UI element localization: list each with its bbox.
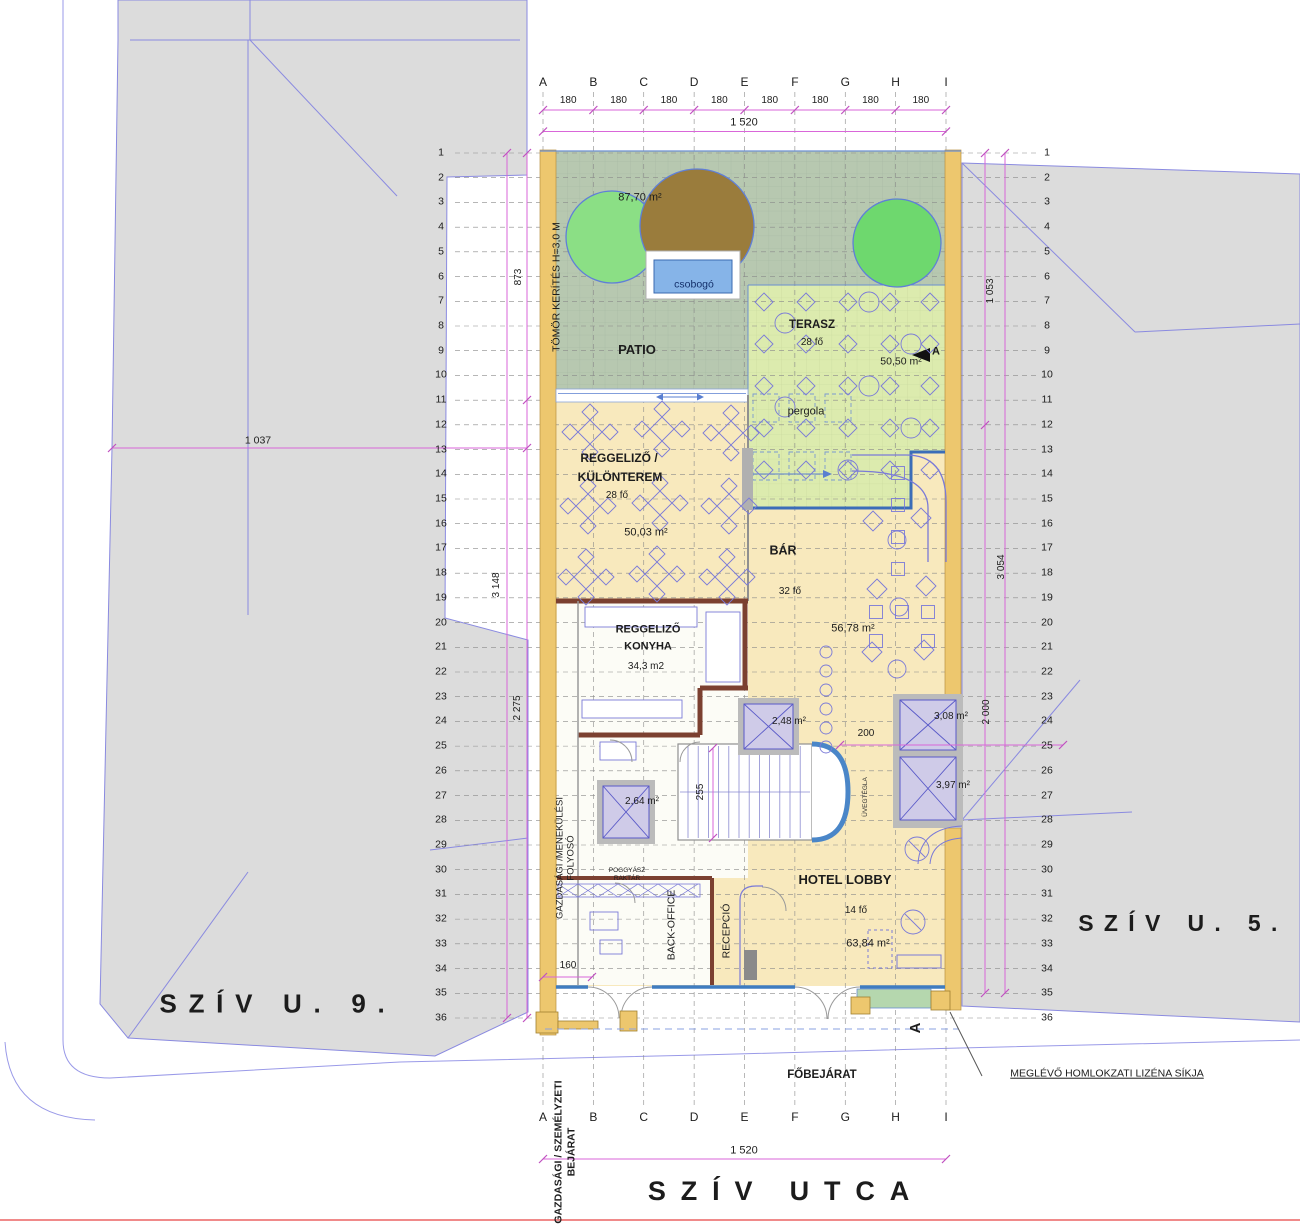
- backoffice-area: [557, 878, 712, 985]
- grid-letter-bottom-G: G: [841, 1110, 850, 1124]
- label-poggyasz-1: POGGYÁSZ: [609, 867, 645, 875]
- grid-row-right-32: 32: [1041, 913, 1053, 926]
- area-terasz: 50,50 m²: [880, 356, 921, 369]
- dim-bar-200: 200: [858, 728, 875, 740]
- grid-row-left-32: 32: [435, 913, 447, 926]
- room-label-bar: BÁR: [769, 544, 796, 559]
- label-folyoso-line1: GAZDASÁGI /MENEKÜLÉSI: [555, 797, 566, 919]
- grid-row-left-11: 11: [436, 394, 447, 407]
- grid-row-right-35: 35: [1041, 987, 1053, 1000]
- capacity-lobby: 14 fő: [845, 905, 867, 917]
- grid-row-right-33: 33: [1041, 938, 1053, 951]
- grid-row-left-14: 14: [435, 468, 447, 481]
- grid-row-right-23: 23: [1041, 690, 1053, 703]
- grid-letter-top-I: I: [944, 75, 947, 89]
- grid-bay-dim: 180: [560, 95, 577, 107]
- grid-row-left-7: 7: [438, 295, 444, 308]
- grid-row-right-34: 34: [1041, 962, 1053, 975]
- grid-row-left-30: 30: [435, 863, 447, 876]
- label-folyoso-line2: FOLYOSÓ: [566, 797, 577, 919]
- grid-row-left-28: 28: [435, 814, 447, 827]
- elevator-2-64: [597, 780, 655, 844]
- grid-row-right-26: 26: [1041, 765, 1053, 778]
- grid-row-right-20: 20: [1041, 616, 1053, 629]
- grid-letter-top-B: B: [589, 75, 597, 89]
- label-uvegtegla: ÜVEGTÉGLA: [862, 777, 870, 817]
- section-letter-top: A: [932, 345, 940, 358]
- grid-row-left-23: 23: [435, 690, 447, 703]
- site-plan-drawing: [0, 0, 1300, 1224]
- grid-bay-dim: 180: [610, 95, 627, 107]
- grid-letter-bottom-F: F: [791, 1110, 798, 1124]
- label-kerites: TÖMÖR KERÍTÉS H=3,0 M: [551, 222, 564, 352]
- grid-row-right-8: 8: [1044, 320, 1050, 333]
- room-label-reggelizo-1: REGGELIZŐ /: [580, 451, 657, 465]
- grid-row-left-9: 9: [438, 344, 444, 357]
- grid-row-left-22: 22: [435, 666, 447, 679]
- grid-row-left-15: 15: [435, 493, 447, 506]
- grid-row-right-11: 11: [1042, 394, 1053, 407]
- street-label-sziv-u9: SZÍV U. 9.: [160, 988, 397, 1019]
- grid-row-left-13: 13: [435, 443, 447, 456]
- grid-letter-bottom-B: B: [589, 1110, 597, 1124]
- label-lizena: MEGLÉVŐ HOMLOKZATI LIZÉNA SÍKJA: [1010, 1068, 1204, 1081]
- grid-row-left-21: 21: [435, 641, 447, 654]
- area-elevator-2: 3,08 m²: [934, 711, 968, 723]
- grid-row-right-5: 5: [1044, 246, 1050, 259]
- grid-letter-bottom-H: H: [891, 1110, 900, 1124]
- grid-letter-top-G: G: [841, 75, 850, 89]
- grid-row-right-18: 18: [1041, 567, 1053, 580]
- grid-row-right-31: 31: [1041, 888, 1053, 901]
- building-left-sziv-u9: [100, 0, 528, 1056]
- dim-left-upper: 873: [513, 269, 525, 286]
- grid-row-right-17: 17: [1041, 542, 1053, 555]
- grid-row-right-1: 1: [1044, 147, 1050, 160]
- label-fobejarat: FŐBEJÁRAT: [787, 1069, 856, 1083]
- room-label-reggelizo-2: KÜLÖNTEREM: [578, 470, 663, 484]
- section-letter-bottom: A: [907, 1023, 925, 1034]
- grid-row-right-30: 30: [1041, 863, 1053, 876]
- grid-letter-top-E: E: [740, 75, 748, 89]
- area-elevator-4: 2,64 m²: [625, 796, 659, 808]
- grid-row-left-5: 5: [438, 246, 444, 259]
- grid-row-left-34: 34: [435, 962, 447, 975]
- grid-row-left-16: 16: [435, 517, 447, 530]
- grid-bay-dim: 180: [661, 95, 678, 107]
- capacity-reggelizo: 28 fő: [606, 490, 628, 502]
- dim-total-top: 1 520: [730, 116, 758, 129]
- grid-letter-bottom-A: A: [539, 1110, 547, 1124]
- grid-row-right-13: 13: [1041, 443, 1053, 456]
- dim-total-bottom: 1 520: [730, 1144, 758, 1157]
- site-plan: PATIO 87,70 m² csobogó TERASZ 28 fő 50,5…: [0, 0, 1300, 1224]
- grid-row-right-6: 6: [1044, 270, 1050, 283]
- dim-left-lower: 2 275: [512, 695, 524, 720]
- grid-letter-top-D: D: [690, 75, 699, 89]
- area-lobby: 63,84 m²: [846, 937, 889, 950]
- dim-left-total: 3 148: [491, 572, 503, 597]
- grid-row-right-21: 21: [1041, 641, 1053, 654]
- dim-entry-160: 160: [560, 960, 577, 972]
- grid-row-right-7: 7: [1044, 295, 1050, 308]
- room-label-lobby: HOTEL LOBBY: [799, 872, 892, 888]
- room-label-terasz: TERASZ: [789, 319, 835, 333]
- label-csobogo: csobogó: [674, 279, 714, 292]
- grid-letter-top-C: C: [639, 75, 648, 89]
- grid-row-right-15: 15: [1041, 493, 1053, 506]
- grid-row-right-36: 36: [1041, 1012, 1053, 1025]
- dim-stair-255: 255: [695, 784, 707, 801]
- grid-letter-bottom-I: I: [944, 1110, 947, 1124]
- grid-row-left-36: 36: [435, 1012, 447, 1025]
- grid-row-left-19: 19: [435, 592, 447, 605]
- dim-right-lower: 2 000: [981, 699, 993, 724]
- grid-row-left-18: 18: [435, 567, 447, 580]
- label-gazdasagi-bejarat: GAZDASÁGI / SZEMÉLYZETI BEJÁRAT: [552, 1080, 577, 1223]
- glass-block-wall: [812, 744, 848, 840]
- grid-row-left-1: 1: [438, 147, 444, 160]
- grid-row-right-22: 22: [1041, 666, 1053, 679]
- grid-row-right-19: 19: [1041, 592, 1053, 605]
- grid-letter-bottom-D: D: [690, 1110, 699, 1124]
- grid-row-right-29: 29: [1041, 839, 1053, 852]
- capacity-bar: 32 fő: [779, 586, 801, 598]
- dim-right-upper: 1 053: [985, 278, 997, 303]
- grid-row-right-25: 25: [1041, 740, 1053, 753]
- grid-row-left-17: 17: [435, 542, 447, 555]
- tree-green-right: [853, 199, 941, 287]
- grid-bay-dim: 180: [812, 95, 829, 107]
- grid-row-left-2: 2: [438, 171, 444, 184]
- grid-row-left-20: 20: [435, 616, 447, 629]
- grid-row-right-10: 10: [1041, 369, 1053, 382]
- grid-row-left-26: 26: [435, 765, 447, 778]
- grid-letter-top-A: A: [539, 75, 547, 89]
- grid-row-left-8: 8: [438, 320, 444, 333]
- grid-bay-dim: 180: [711, 95, 728, 107]
- grid-row-left-35: 35: [435, 987, 447, 1000]
- building-right-sziv-u5: [962, 163, 1300, 1022]
- area-elevator-3: 3,97 m²: [936, 780, 970, 792]
- label-poggyasz-2: RAKTÁR: [614, 875, 640, 883]
- room-label-patio: PATIO: [618, 342, 656, 358]
- dim-right-total: 3 054: [996, 554, 1008, 579]
- grid-bay-dim: 180: [912, 95, 929, 107]
- area-bar: 56,78 m²: [831, 622, 874, 635]
- label-pergola: pergola: [788, 405, 825, 418]
- grid-row-right-3: 3: [1044, 196, 1050, 209]
- area-patio: 87,70 m²: [618, 191, 661, 204]
- grid-row-left-3: 3: [438, 196, 444, 209]
- grid-bay-dim: 180: [862, 95, 879, 107]
- grid-row-right-16: 16: [1041, 517, 1053, 530]
- street-label-sziv-u5: SZÍV U. 5.: [1078, 910, 1288, 938]
- grid-letter-bottom-E: E: [740, 1110, 748, 1124]
- grid-row-right-14: 14: [1041, 468, 1053, 481]
- right-wall-lower: [945, 828, 961, 1010]
- dim-block-1037: 1 037: [245, 435, 271, 448]
- grid-row-left-25: 25: [435, 740, 447, 753]
- grid-letter-top-H: H: [891, 75, 900, 89]
- label-folyoso: GAZDASÁGI /MENEKÜLÉSI FOLYOSÓ: [555, 797, 578, 919]
- grid-row-left-24: 24: [435, 715, 447, 728]
- area-elevator-1: 2,48 m²: [772, 716, 806, 728]
- grid-row-left-6: 6: [438, 270, 444, 283]
- grid-row-left-4: 4: [438, 221, 444, 234]
- grid-row-right-24: 24: [1041, 715, 1053, 728]
- room-label-konyha-1: REGGELIZŐ: [616, 623, 681, 636]
- grid-row-right-27: 27: [1041, 789, 1053, 802]
- grid-row-right-4: 4: [1044, 221, 1050, 234]
- label-gazdasagi-line2: BEJÁRAT: [565, 1080, 578, 1223]
- street-label-sziv-utca: SZÍV UTCA: [648, 1175, 924, 1207]
- grid-row-left-31: 31: [435, 888, 447, 901]
- right-wall-upper: [945, 150, 961, 695]
- grid-row-right-12: 12: [1041, 419, 1053, 432]
- room-label-backoffice: BACK-OFFICE: [666, 890, 679, 961]
- grid-row-left-12: 12: [435, 419, 447, 432]
- grid-row-left-29: 29: [435, 839, 447, 852]
- grid-row-left-27: 27: [435, 789, 447, 802]
- label-gazdasagi-line1: GAZDASÁGI / SZEMÉLYZETI: [552, 1080, 565, 1223]
- area-konyha: 34,3 m2: [628, 661, 664, 673]
- grid-row-left-33: 33: [435, 938, 447, 951]
- capacity-terasz: 28 fő: [801, 337, 823, 349]
- area-reggelizo: 50,03 m²: [624, 526, 667, 539]
- grid-row-right-28: 28: [1041, 814, 1053, 827]
- grid-bay-dim: 180: [761, 95, 778, 107]
- room-label-recepcio: RECEPCIÓ: [721, 904, 734, 959]
- grid-row-right-2: 2: [1044, 171, 1050, 184]
- grid-row-left-10: 10: [435, 369, 447, 382]
- grid-letter-bottom-C: C: [639, 1110, 648, 1124]
- grid-row-right-9: 9: [1044, 344, 1050, 357]
- grid-letter-top-F: F: [791, 75, 798, 89]
- room-label-konyha-2: KONYHA: [624, 640, 672, 653]
